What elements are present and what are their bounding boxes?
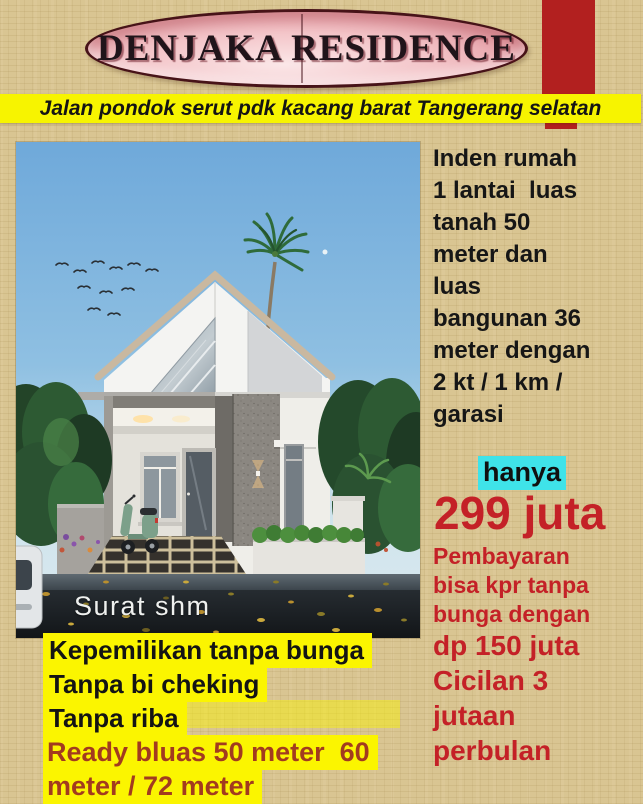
oval-seam	[301, 14, 303, 83]
detail-line: meter dengan	[433, 335, 590, 367]
installment-line: perbulan	[433, 733, 590, 768]
gate-pillar-cap	[331, 496, 365, 501]
ready-line: meter / 72 meter	[43, 769, 262, 804]
price-amount: 299 juta	[434, 486, 605, 540]
offer-line: Kepemilikan tanpa bunga	[43, 633, 372, 668]
offers-block: Kepemilikan tanpa bunga Tanpa bi cheking…	[43, 633, 378, 803]
photo-caption: Surat shm	[74, 591, 211, 622]
moon-icon	[323, 250, 328, 255]
payment-line: Pembayaran	[433, 542, 590, 571]
down-payment-line: dp 150 juta	[433, 629, 590, 663]
hedge-planter	[252, 525, 365, 574]
left-fence-cap	[57, 504, 104, 508]
pavement	[16, 574, 420, 590]
detail-line: luas	[433, 271, 590, 303]
installment-line: Cicilan 3	[433, 663, 590, 698]
address-text: Jalan pondok serut pdk kacang barat Tang…	[40, 97, 602, 121]
flyer-poster: DENJAKA RESIDENCE Jalan pondok serut pdk…	[0, 0, 643, 804]
detail-line: garasi	[433, 399, 590, 431]
property-details: Inden rumah 1 lantai luas tanah 50 meter…	[433, 143, 590, 431]
offer-line: Tanpa bi cheking	[43, 667, 267, 702]
address-banner: Jalan pondok serut pdk kacang barat Tang…	[0, 94, 641, 123]
page-title: DENJAKA RESIDENCE	[97, 27, 516, 70]
ready-line: Ready bluas 50 meter 60	[43, 735, 378, 770]
detail-line: 1 lantai luas	[433, 175, 590, 207]
offer-line: Tanpa riba	[43, 701, 187, 736]
payment-line: bunga dengan	[433, 600, 590, 629]
detail-line: 2 kt / 1 km /	[433, 367, 590, 399]
house-photo: Surat shm	[16, 142, 420, 638]
house-illustration	[16, 142, 420, 638]
detail-line: bangunan 36	[433, 303, 590, 335]
detail-line: tanah 50	[433, 207, 590, 239]
side-window	[284, 444, 304, 532]
payment-line: bisa kpr tanpa	[433, 571, 590, 600]
car-icon	[16, 546, 42, 628]
front-door	[182, 448, 216, 540]
detail-line: Inden rumah	[433, 143, 590, 175]
payment-terms: Pembayaran bisa kpr tanpa bunga dengan d…	[433, 542, 590, 768]
installment-line: jutaan	[433, 698, 590, 733]
hanya-highlight: hanya	[478, 456, 566, 490]
carport-tiles	[88, 536, 246, 574]
title-oval: DENJAKA RESIDENCE	[85, 9, 528, 88]
detail-line: meter dan	[433, 239, 590, 271]
